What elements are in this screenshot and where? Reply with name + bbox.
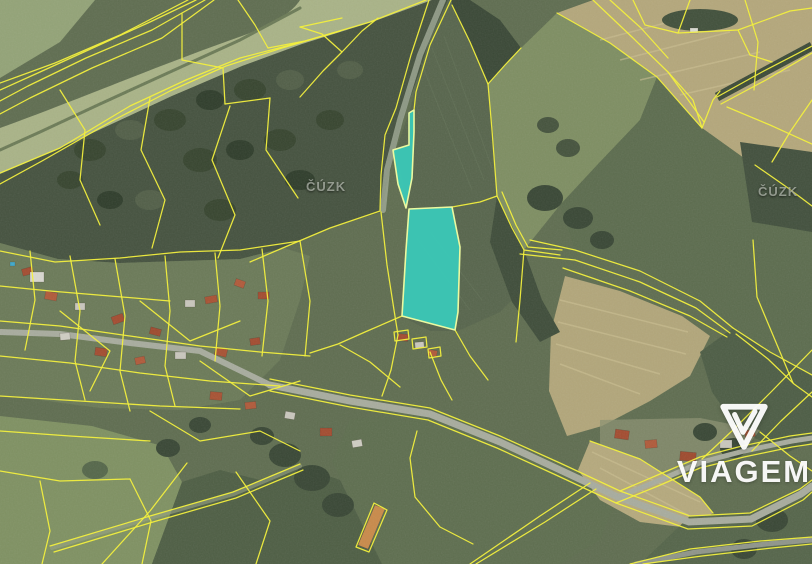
cuzk-watermark: ČÚZK bbox=[306, 179, 346, 194]
highlighted-parcel-main[interactable] bbox=[402, 207, 460, 330]
cadastral-map[interactable]: ČÚZK ČÚZK VIAGEM bbox=[0, 0, 812, 564]
viagem-logo: VIAGEM bbox=[624, 398, 812, 487]
cuzk-watermark: ČÚZK bbox=[758, 184, 798, 199]
viagem-diamond-icon bbox=[718, 398, 770, 454]
viagem-brand-text: VIAGEM bbox=[624, 456, 812, 487]
